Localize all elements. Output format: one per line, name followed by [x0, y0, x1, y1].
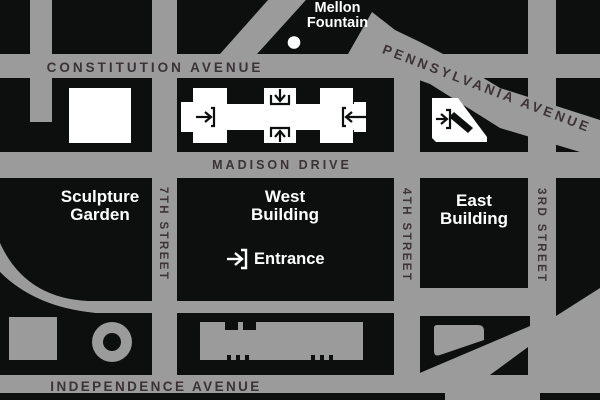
mellon-fountain-label-line2: Fountain [285, 16, 390, 31]
madison-drive-label: MADISON DRIVE [196, 158, 368, 172]
road-maryland-avenue-south [440, 393, 540, 400]
mellon-fountain-label: Mellon Fountain [285, 1, 390, 31]
west-building-label-line1: West [225, 188, 345, 206]
national-gallery-area-map: CONSTITUTION AVENUE PENNSYLVANIA AVENUE … [0, 0, 600, 400]
building-round-ring-hole [103, 333, 121, 351]
fourth-street-label: 4TH STREET [400, 188, 412, 282]
south-edge-strip-east [545, 393, 600, 400]
castle-notch [243, 322, 256, 330]
road-area-southeast [556, 316, 600, 376]
castle-notch [225, 322, 238, 330]
castle-tooth [227, 355, 231, 360]
entrance-label: Entrance [254, 250, 325, 268]
sculpture-garden-label-line1: Sculpture [40, 188, 160, 206]
building-southwest-square [9, 317, 57, 360]
east-building-label-line2: Building [414, 210, 534, 228]
mellon-fountain-label-line1: Mellon [285, 1, 390, 16]
west-building-label: West Building [225, 188, 345, 224]
constitution-avenue-label: CONSTITUTION AVENUE [36, 60, 274, 75]
mellon-fountain-dot-icon [288, 36, 301, 49]
south-edge-strip-west [0, 393, 445, 400]
sculpture-garden-pool [69, 88, 131, 143]
castle-tooth [236, 355, 240, 360]
castle-tooth [311, 355, 315, 360]
west-building-label-line2: Building [225, 206, 345, 224]
east-building-label-line1: East [414, 192, 534, 210]
third-street-label: 3RD STREET [535, 188, 547, 284]
building-castle-footprint [200, 322, 363, 360]
castle-tooth [245, 355, 249, 360]
castle-tooth [320, 355, 324, 360]
independence-avenue-label: INDEPENDENCE AVENUE [36, 379, 276, 394]
castle-tooth [329, 355, 333, 360]
east-building-label: East Building [414, 192, 534, 228]
sculpture-garden-label: Sculpture Garden [40, 188, 160, 224]
sculpture-garden-label-line2: Garden [40, 206, 160, 224]
